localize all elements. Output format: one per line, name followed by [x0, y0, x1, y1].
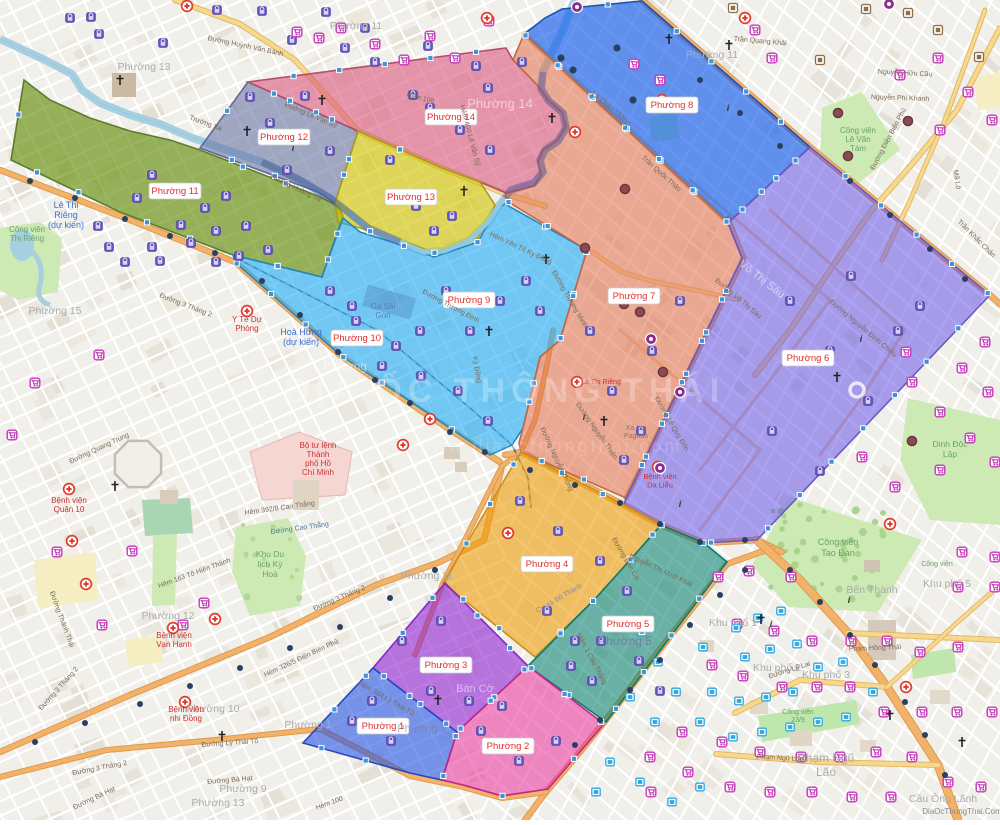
svg-text:Phường 3: Phường 3 [425, 660, 468, 671]
svg-text:lịch Kỳ: lịch Kỳ [257, 559, 283, 569]
svg-text:Dinh Độc: Dinh Độc [933, 439, 969, 449]
svg-text:www.diaocthongthai.com: www.diaocthongthai.com [416, 436, 682, 456]
svg-text:Cầu Ông Lãnh: Cầu Ông Lãnh [909, 792, 977, 805]
svg-text:23/9: 23/9 [791, 717, 805, 724]
svg-text:Lê Thị: Lê Thị [54, 200, 79, 210]
svg-text:Thành: Thành [307, 450, 330, 459]
svg-text:Bệnh viện: Bệnh viện [51, 496, 87, 505]
svg-text:phố Hồ: phố Hồ [305, 459, 331, 468]
svg-text:Công viên: Công viên [9, 225, 45, 234]
svg-text:Phường 13: Phường 13 [191, 797, 244, 809]
svg-text:Phường: Phường [323, 359, 367, 373]
svg-text:Khu phố 1: Khu phố 1 [709, 617, 757, 629]
svg-text:Phường 13: Phường 13 [117, 61, 170, 73]
svg-text:Phường 11: Phường 11 [401, 570, 453, 582]
svg-text:Phường 2: Phường 2 [487, 741, 530, 752]
svg-text:Công viên: Công viên [840, 126, 876, 135]
svg-text:Khu phố 5: Khu phố 5 [923, 578, 971, 590]
svg-text:Phường 4: Phường 4 [526, 559, 569, 570]
svg-text:Công viên: Công viên [818, 537, 859, 547]
svg-text:Phường 7: Phường 7 [613, 291, 656, 302]
svg-text:Lê Văn: Lê Văn [845, 135, 870, 144]
svg-text:Quận 10: Quận 10 [54, 505, 85, 514]
svg-text:Phường 13: Phường 13 [387, 192, 435, 203]
svg-text:Bệnh viện: Bệnh viện [156, 631, 192, 640]
svg-text:Phường 1: Phường 1 [284, 719, 331, 731]
svg-text:Lão: Lão [816, 765, 836, 779]
svg-text:Ga Sài: Ga Sài [371, 302, 396, 311]
svg-text:Phòng: Phòng [235, 324, 258, 333]
svg-text:DiaOcThongThai.Com: DiaOcThongThai.Com [922, 807, 1000, 816]
svg-text:Gòn: Gòn [375, 311, 390, 320]
svg-text:Bộ tư lệnh: Bộ tư lệnh [300, 441, 337, 450]
svg-text:Phường 11: Phường 11 [330, 20, 382, 32]
svg-text:Phường 11: Phường 11 [151, 186, 198, 197]
svg-text:Riêng: Riêng [54, 210, 78, 220]
svg-text:ĐỊA ỐC THÔNG THÁI: ĐỊA ỐC THÔNG THÁI [285, 371, 726, 410]
svg-text:Phường 15: Phường 15 [28, 305, 81, 317]
svg-text:Tao Đàn: Tao Đàn [821, 548, 855, 558]
svg-text:Lập: Lập [943, 449, 957, 459]
svg-text:Phạm Ngũ: Phạm Ngũ [798, 751, 855, 765]
svg-text:Phường 14: Phường 14 [467, 96, 533, 111]
svg-text:Y Tế Dự: Y Tế Dự [232, 315, 263, 324]
svg-text:Công viên: Công viên [782, 709, 814, 716]
svg-text:Công viên: Công viên [921, 561, 953, 568]
svg-text:Khu phố 3: Khu phố 3 [802, 669, 850, 681]
svg-text:Da Liễu: Da Liễu [647, 481, 673, 490]
svg-text:Phường 6: Phường 6 [787, 353, 830, 364]
svg-text:Phường 1: Phường 1 [397, 723, 446, 735]
svg-text:Bệnh viện: Bệnh viện [168, 705, 204, 714]
svg-text:Phường 9: Phường 9 [219, 783, 266, 795]
svg-text:Xá Lợi: Xá Lợi [626, 425, 647, 432]
svg-text:Bàn Cờ: Bàn Cờ [456, 683, 494, 695]
svg-text:Tám: Tám [850, 144, 866, 153]
svg-text:Phường 11: Phường 11 [686, 49, 738, 61]
svg-text:Hoà Hưng: Hoà Hưng [280, 327, 322, 337]
svg-text:Phường 5: Phường 5 [607, 619, 650, 630]
svg-text:Khu Du: Khu Du [256, 549, 285, 559]
svg-text:Phường 12: Phường 12 [141, 610, 194, 622]
svg-text:Bến Thành: Bến Thành [846, 584, 897, 596]
svg-text:(dự kiến): (dự kiến) [283, 337, 319, 347]
svg-text:Phường 12: Phường 12 [260, 132, 308, 143]
svg-text:Phường 5: Phường 5 [598, 634, 652, 648]
svg-text:Thị Riêng: Thị Riêng [10, 234, 44, 243]
svg-text:Phường 8: Phường 8 [651, 100, 694, 111]
svg-text:Chí Minh: Chí Minh [302, 468, 334, 477]
svg-text:Phường 10: Phường 10 [333, 333, 381, 344]
svg-text:(dự kiến): (dự kiến) [48, 220, 84, 230]
svg-text:Hoà: Hoà [262, 569, 278, 579]
svg-text:nhi Đồng: nhi Đồng [170, 714, 202, 723]
svg-text:Vạn Hạnh: Vạn Hạnh [156, 640, 192, 649]
